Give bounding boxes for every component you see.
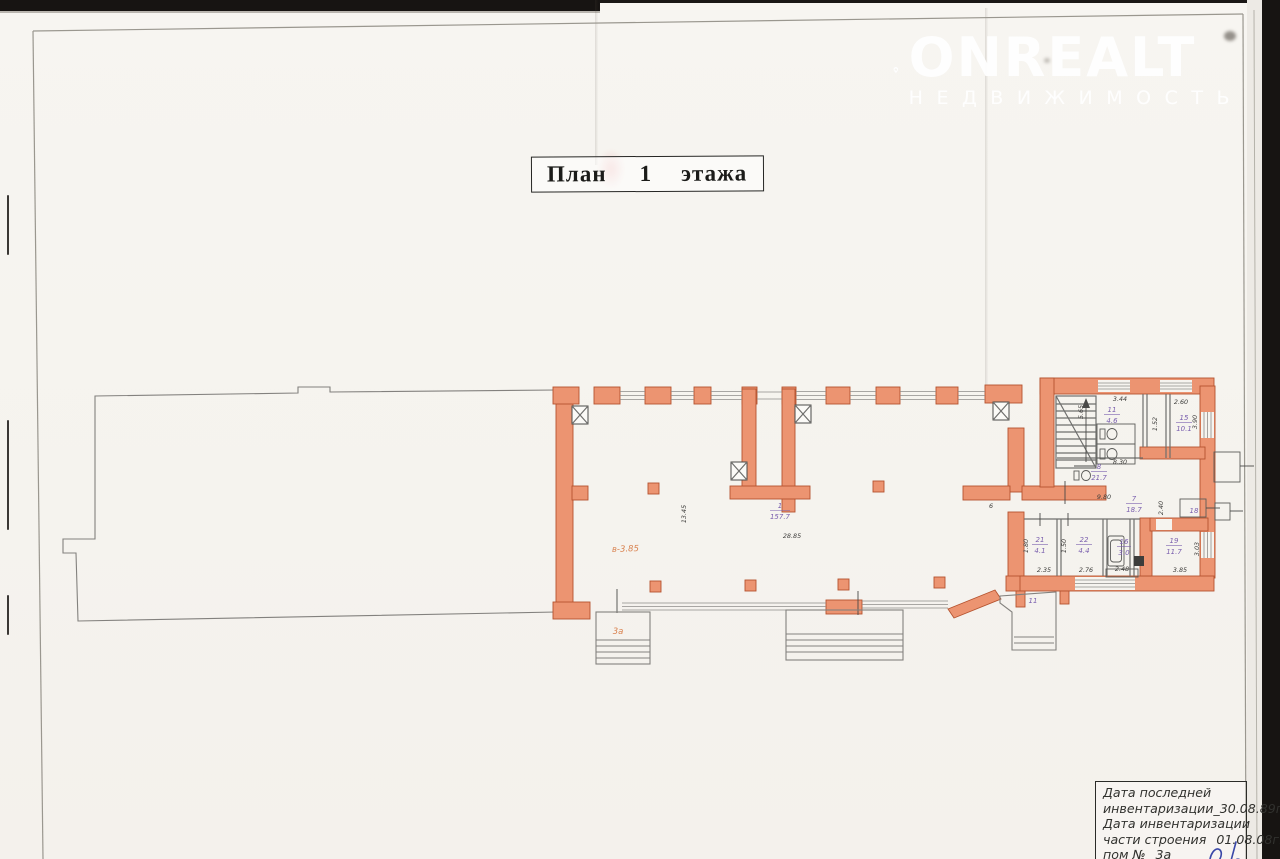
svg-text:11: 11 [1108, 406, 1117, 414]
page-frame [33, 10, 1257, 859]
svg-text:16: 16 [1120, 538, 1129, 546]
dim-hall-width: 28.85 [783, 532, 801, 540]
dim: 3.03 [1193, 542, 1201, 556]
svg-text:11.7: 11.7 [1166, 548, 1182, 556]
exterior-annexes [1214, 452, 1254, 520]
staircase [1056, 396, 1096, 468]
stamp-line4-label: части строения [1103, 832, 1206, 848]
svg-text:8: 8 [1097, 463, 1102, 471]
dim: 1.52 [1151, 417, 1159, 431]
room-label-vestibule: 11 [1029, 597, 1038, 605]
dim: 1.50 [1060, 539, 1068, 553]
dim: 2.76 [1079, 566, 1093, 574]
dim-hall-depth: 13.45 [680, 505, 688, 523]
height-note: в-3.85 [612, 544, 639, 555]
svg-text:7: 7 [1132, 495, 1137, 503]
dim: 5.65 [1077, 405, 1085, 419]
room-label: 22 4.4 [1076, 536, 1092, 555]
dimension-labels: 28.85 13.45 6 3.44 2.60 3.90 1.52 5.65 8… [680, 395, 1201, 574]
floorplan-drawing: .wall{fill:#EC9471;stroke:#B5532F;stroke… [0, 0, 1280, 859]
svg-text:21: 21 [1036, 536, 1045, 544]
room-label: 15 10.1 [1176, 414, 1192, 433]
dim: 3.90 [1191, 415, 1199, 429]
svg-text:15: 15 [1180, 414, 1189, 422]
dim: 2.60 [1174, 398, 1188, 406]
room-label: 21 4.1 [1032, 536, 1048, 555]
stamp-line3: Дата инвентаризации [1103, 816, 1250, 832]
room-label: 7 18.7 [1126, 495, 1142, 514]
room-label: 19 11.7 [1166, 537, 1182, 556]
stamp-line5-label: пом № [1103, 847, 1146, 859]
svg-text:22: 22 [1080, 536, 1089, 544]
handwritten-notes: в-3.85 3а [612, 544, 639, 637]
room-label: 18 [1190, 507, 1199, 515]
dim: 8.30 [1113, 458, 1127, 466]
stamp-line1: Дата последней [1103, 785, 1211, 801]
scanned-floorplan-page: ONREALT НЕДВИЖИМОСТЬ План 1 этажа .wall{… [0, 0, 1280, 859]
room-label: 11 4.6 [1104, 406, 1120, 425]
svg-text:3.0: 3.0 [1118, 549, 1130, 557]
svg-text:1: 1 [778, 502, 782, 510]
svg-text:4.6: 4.6 [1106, 417, 1118, 425]
blue-pen-signature [1204, 840, 1246, 859]
dim: 2.48 [1115, 565, 1129, 573]
dim-stub: 6 [989, 502, 993, 510]
porch-label: 3а [613, 627, 624, 637]
svg-text:4.4: 4.4 [1078, 547, 1089, 555]
dim: 3.85 [1173, 566, 1187, 574]
adjacent-building-outline [63, 387, 556, 621]
svg-text:18.7: 18.7 [1126, 506, 1142, 514]
inventory-stamp: Дата последней инвентаризации_30.08.89г.… [1095, 781, 1247, 859]
svg-text:157.7: 157.7 [770, 513, 791, 521]
hall-windows [617, 392, 985, 616]
svg-text:19: 19 [1170, 537, 1179, 545]
svg-text:21.7: 21.7 [1091, 474, 1107, 482]
dim: 3.44 [1113, 395, 1127, 403]
stamp-line2: инвентаризации_30.08.89г. [1103, 801, 1280, 817]
dim: 2.40 [1157, 501, 1165, 515]
dim: 9.80 [1097, 493, 1111, 501]
dim: 1.80 [1022, 539, 1030, 553]
stamp-line5-value: 3а [1156, 847, 1172, 859]
svg-text:4.1: 4.1 [1034, 547, 1045, 555]
svg-text:10.1: 10.1 [1176, 425, 1192, 433]
stove-icon [1134, 556, 1144, 566]
dim: 2.35 [1037, 566, 1051, 574]
